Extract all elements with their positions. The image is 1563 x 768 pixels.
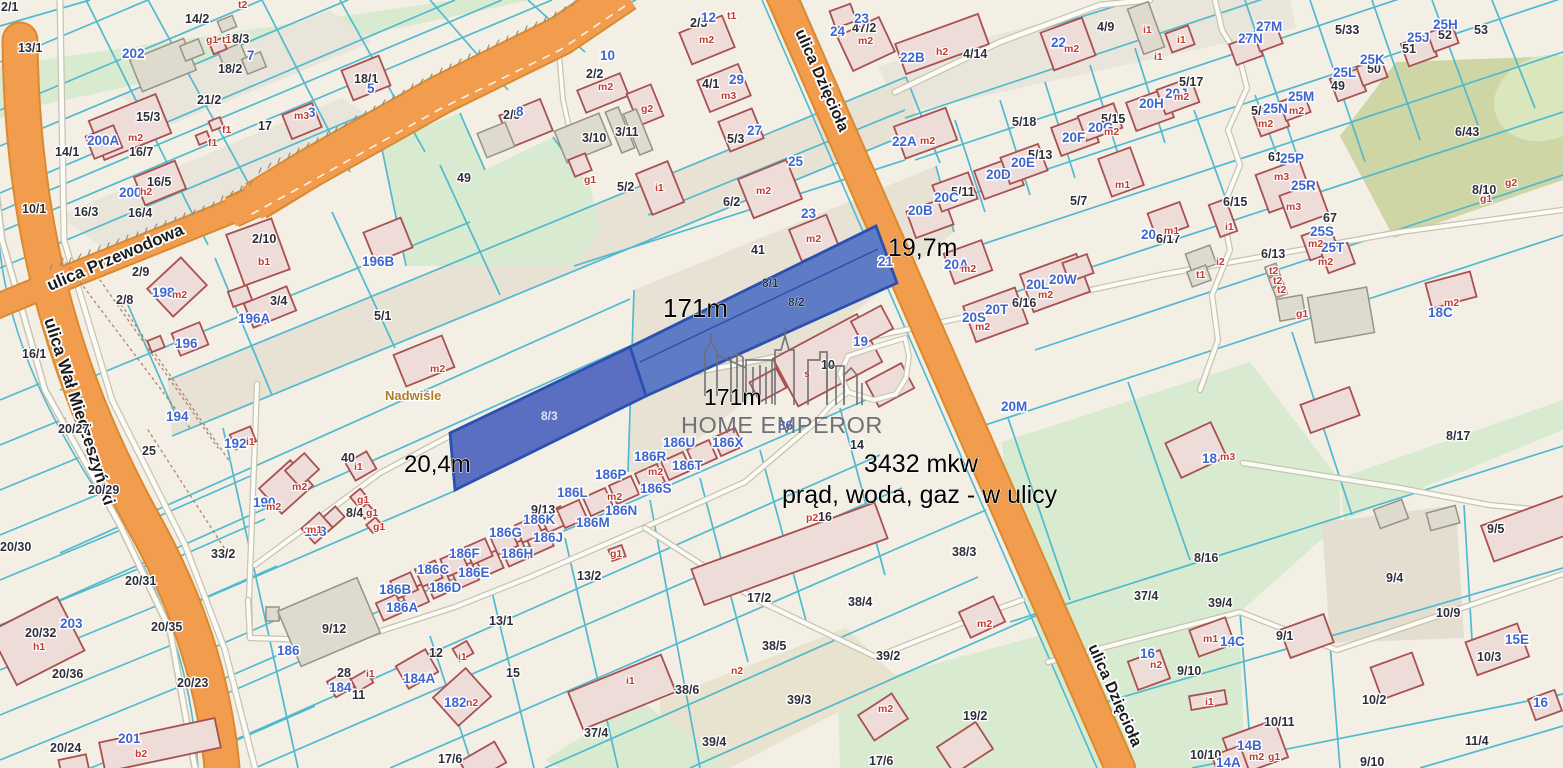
svg-text:n2: n2 [731,665,743,677]
svg-text:186F: 186F [449,546,480,561]
svg-text:24: 24 [830,24,846,39]
svg-text:16/1: 16/1 [22,347,46,361]
svg-text:25J: 25J [1407,30,1430,45]
svg-text:18/2: 18/2 [218,62,242,76]
svg-text:4/14: 4/14 [963,47,987,61]
svg-text:38/4: 38/4 [848,595,872,609]
svg-text:i1: i1 [246,436,255,448]
svg-text:182: 182 [444,695,467,710]
svg-text:m2: m2 [1249,751,1264,763]
svg-text:186T: 186T [672,458,704,473]
svg-text:5/7: 5/7 [1070,194,1087,208]
svg-text:20/23: 20/23 [177,676,208,690]
svg-text:18: 18 [1202,451,1218,466]
svg-text:192: 192 [224,436,247,451]
svg-text:20/35: 20/35 [151,620,182,634]
svg-text:h1: h1 [33,641,45,653]
svg-text:g2: g2 [641,103,653,115]
svg-text:21/2: 21/2 [197,93,221,107]
svg-text:49: 49 [457,171,471,185]
svg-text:9/1: 9/1 [1276,629,1293,643]
svg-text:h2: h2 [140,186,152,198]
svg-text:10/9: 10/9 [1436,606,1460,620]
svg-text:20/29: 20/29 [88,483,119,497]
svg-text:f1: f1 [222,124,231,136]
svg-text:186P: 186P [595,467,627,482]
svg-text:22A: 22A [892,134,917,149]
svg-text:16: 16 [1533,695,1549,710]
svg-text:20C: 20C [934,190,959,205]
svg-text:23: 23 [801,206,817,221]
svg-text:186D: 186D [429,580,462,595]
svg-text:5/33: 5/33 [1335,23,1359,37]
svg-text:m2: m2 [1308,238,1323,250]
svg-text:m2: m2 [266,501,281,513]
svg-text:8/1: 8/1 [762,276,779,290]
svg-text:i2: i2 [1216,256,1225,268]
svg-text:171m: 171m [663,293,728,323]
svg-text:9/12: 9/12 [322,622,346,636]
svg-text:11: 11 [352,688,365,702]
svg-text:8/17: 8/17 [1446,429,1470,443]
svg-text:20M: 20M [1001,399,1027,414]
svg-text:29: 29 [729,72,744,87]
svg-text:10: 10 [821,358,835,372]
svg-text:186K: 186K [523,512,556,527]
svg-text:m2: m2 [648,466,663,478]
svg-text:6/15: 6/15 [1223,195,1247,209]
svg-text:186C: 186C [417,562,450,577]
svg-text:m3: m3 [1220,451,1235,463]
svg-text:i1: i1 [1154,51,1163,63]
svg-text:17: 17 [258,119,272,133]
svg-text:186A: 186A [386,600,419,615]
svg-text:25H: 25H [1433,17,1458,32]
svg-text:14: 14 [850,438,864,452]
svg-text:186M: 186M [576,515,610,530]
svg-text:i1: i1 [626,675,635,687]
svg-text:8/2: 8/2 [788,295,805,309]
svg-text:25L: 25L [1333,65,1356,80]
svg-text:17/2: 17/2 [747,591,771,605]
svg-text:m2: m2 [1174,91,1189,103]
svg-text:10: 10 [600,48,615,63]
svg-text:i1: i1 [1225,221,1234,233]
svg-text:39/4: 39/4 [702,735,726,749]
svg-text:67: 67 [1323,211,1337,225]
svg-text:40: 40 [341,451,355,465]
svg-text:16/3: 16/3 [74,205,98,219]
svg-text:Nadwiśle: Nadwiśle [385,388,441,403]
svg-text:7: 7 [247,48,255,63]
svg-text:186: 186 [277,643,300,658]
svg-text:m2: m2 [1289,105,1304,117]
svg-text:20: 20 [1141,227,1156,242]
svg-text:39/2: 39/2 [876,649,900,663]
svg-text:33/2: 33/2 [211,547,235,561]
svg-text:201: 201 [118,731,141,746]
svg-text:25K: 25K [1360,52,1385,67]
svg-text:38/3: 38/3 [952,545,976,559]
svg-text:m2: m2 [430,363,445,375]
svg-text:13/1: 13/1 [18,41,42,55]
svg-text:41: 41 [751,243,765,257]
svg-text:10/1: 10/1 [22,202,46,216]
svg-text:m2: m2 [858,35,873,47]
svg-text:20F: 20F [1062,130,1085,145]
svg-text:8/4: 8/4 [346,506,363,520]
svg-text:20/30: 20/30 [0,540,31,554]
svg-text:14C: 14C [1220,634,1245,649]
svg-text:25R: 25R [1291,178,1316,193]
svg-text:20W: 20W [1049,272,1077,287]
svg-text:m2: m2 [878,703,893,715]
svg-text:15: 15 [506,666,520,680]
svg-text:20/27: 20/27 [58,422,89,436]
svg-text:2/1: 2/1 [1,0,18,14]
svg-text:m2: m2 [1318,256,1333,268]
svg-text:25: 25 [788,154,804,169]
svg-text:m3: m3 [1274,171,1289,183]
svg-text:186B: 186B [379,582,412,597]
svg-text:20/32: 20/32 [25,626,56,640]
svg-text:10/3: 10/3 [1477,650,1501,664]
svg-text:203: 203 [60,616,83,631]
svg-text:15E: 15E [1505,632,1529,647]
svg-text:16: 16 [818,510,832,524]
svg-text:171m: 171m [704,384,762,410]
svg-text:38/6: 38/6 [675,683,699,697]
svg-text:186S: 186S [640,481,672,496]
svg-text:9/5: 9/5 [1487,522,1504,536]
svg-text:14A: 14A [1216,755,1241,768]
svg-text:16/7: 16/7 [129,145,153,159]
svg-text:186J: 186J [533,530,563,545]
svg-text:m2: m2 [1258,118,1273,130]
svg-text:5: 5 [367,81,375,96]
svg-text:13/1: 13/1 [489,614,513,628]
svg-text:19: 19 [853,334,868,349]
svg-text:25M: 25M [1288,89,1314,104]
svg-text:37/4: 37/4 [584,726,608,740]
svg-text:20T: 20T [985,302,1009,317]
svg-text:186R: 186R [634,449,667,464]
svg-text:202: 202 [122,46,145,61]
svg-text:186E: 186E [458,565,490,580]
svg-text:m2: m2 [806,233,821,245]
svg-text:m3: m3 [721,90,736,102]
svg-text:2/2: 2/2 [586,67,603,81]
svg-text:m1: m1 [1115,179,1130,191]
svg-text:9/10: 9/10 [1360,755,1384,768]
svg-text:186L: 186L [557,485,588,500]
svg-text:14/2: 14/2 [185,12,209,26]
svg-text:4/9: 4/9 [1097,20,1114,34]
svg-text:h2: h2 [936,46,948,58]
svg-text:17/6: 17/6 [869,754,893,768]
svg-text:3/10: 3/10 [582,131,606,145]
svg-text:m2: m2 [756,185,771,197]
svg-text:11/4: 11/4 [1465,734,1489,748]
svg-text:9/10: 9/10 [1177,664,1201,678]
svg-text:m2: m2 [1444,297,1459,309]
svg-text:6/16: 6/16 [1012,296,1036,310]
svg-text:20/31: 20/31 [125,574,156,588]
svg-text:g1: g1 [610,548,622,560]
svg-text:m2: m2 [128,132,143,144]
svg-text:25N: 25N [1263,101,1288,116]
svg-text:m2: m2 [172,289,187,301]
svg-text:g1: g1 [1268,751,1280,763]
svg-text:13/2: 13/2 [577,569,601,583]
svg-text:g1: g1 [206,34,218,46]
svg-text:196B: 196B [362,254,395,269]
svg-text:3/4: 3/4 [270,294,287,308]
svg-text:i1: i1 [458,651,467,663]
svg-text:17/6: 17/6 [438,752,462,766]
svg-text:5/18: 5/18 [1012,115,1036,129]
svg-text:t2: t2 [1277,284,1286,296]
svg-text:m1: m1 [1203,633,1218,645]
svg-text:t1: t1 [222,34,231,46]
svg-text:20,4m: 20,4m [404,451,471,478]
svg-text:p2: p2 [806,512,818,524]
svg-text:m2: m2 [920,135,935,147]
svg-text:200: 200 [119,185,142,200]
svg-text:8/3: 8/3 [541,409,558,423]
svg-text:3/11: 3/11 [615,125,639,139]
svg-text:g1: g1 [1296,308,1308,320]
svg-text:16/4: 16/4 [128,206,152,220]
svg-text:14/1: 14/1 [55,145,79,159]
svg-text:5/1: 5/1 [374,309,391,323]
svg-text:184: 184 [329,680,352,695]
svg-text:n2: n2 [466,697,478,709]
svg-text:i1: i1 [354,461,363,473]
svg-text:m3: m3 [294,110,309,122]
svg-text:m2: m2 [1038,289,1053,301]
svg-text:t1: t1 [1196,269,1205,281]
svg-text:20B: 20B [908,203,933,218]
svg-text:28: 28 [337,666,351,680]
svg-text:m3: m3 [1286,201,1301,213]
svg-text:12: 12 [701,10,716,25]
svg-text:m2: m2 [977,618,992,630]
svg-text:m2: m2 [1064,43,1079,55]
svg-text:38/5: 38/5 [762,639,786,653]
svg-text:25P: 25P [1280,151,1304,166]
svg-text:m2: m2 [1104,126,1119,138]
svg-text:2/10: 2/10 [252,232,276,246]
svg-text:200A: 200A [87,133,120,148]
svg-text:m2: m2 [961,263,976,275]
svg-text:27N: 27N [1238,31,1263,46]
svg-text:6/13: 6/13 [1261,247,1285,261]
svg-text:m2: m2 [699,34,714,46]
svg-text:b2: b2 [135,748,147,760]
svg-text:10/2: 10/2 [1362,693,1386,707]
svg-text:prąd, woda, gaz - w ulicy: prąd, woda, gaz - w ulicy [782,481,1058,509]
svg-text:20/24: 20/24 [50,741,81,755]
svg-text:g1: g1 [357,494,369,506]
svg-text:25T: 25T [1321,240,1345,255]
svg-text:g2: g2 [1505,177,1517,189]
svg-text:194: 194 [166,409,189,424]
svg-text:20H: 20H [1139,96,1164,111]
svg-text:t2: t2 [238,0,247,11]
svg-text:196: 196 [175,336,198,351]
svg-text:i1: i1 [1205,696,1214,708]
svg-text:m1: m1 [307,524,322,536]
svg-text:186H: 186H [501,546,533,561]
svg-text:3: 3 [308,105,316,120]
svg-text:8: 8 [516,104,524,119]
svg-text:39/3: 39/3 [787,693,811,707]
svg-text:m2: m2 [975,321,990,333]
svg-text:184A: 184A [403,671,436,686]
svg-text:m2: m2 [607,491,622,503]
svg-text:25: 25 [142,444,156,458]
svg-text:12: 12 [429,646,443,660]
svg-text:20E: 20E [1011,155,1035,170]
svg-text:s: s [804,368,810,380]
svg-text:19,7m: 19,7m [888,234,957,262]
svg-text:186G: 186G [489,525,522,540]
svg-text:4/1: 4/1 [702,77,719,91]
svg-text:b1: b1 [258,256,270,268]
svg-text:53: 53 [1474,23,1488,37]
svg-text:i1: i1 [366,668,375,680]
svg-text:3432 mkw: 3432 mkw [864,450,979,478]
svg-text:n2: n2 [1150,659,1162,671]
svg-text:m1: m1 [1164,225,1179,237]
svg-text:186N: 186N [605,503,637,518]
svg-text:g1: g1 [366,507,378,519]
svg-text:196A: 196A [238,311,271,326]
svg-text:9/4: 9/4 [1386,571,1403,585]
svg-text:g1: g1 [373,521,385,533]
svg-text:i1: i1 [655,182,664,194]
svg-text:g1: g1 [1480,193,1492,205]
svg-text:t1: t1 [727,10,736,22]
svg-text:23: 23 [854,11,870,26]
svg-text:20D: 20D [986,167,1011,182]
svg-text:37/4: 37/4 [1134,589,1158,603]
svg-text:f1: f1 [208,137,217,149]
svg-text:10/11: 10/11 [1264,715,1295,729]
svg-text:6/43: 6/43 [1455,125,1479,139]
svg-text:i1: i1 [1177,34,1186,46]
svg-text:5/2: 5/2 [617,180,634,194]
svg-text:2/9: 2/9 [132,265,149,279]
svg-text:8/16: 8/16 [1194,551,1218,565]
svg-text:6/2: 6/2 [723,195,740,209]
svg-text:19/2: 19/2 [963,709,987,723]
svg-text:m2: m2 [598,81,613,93]
svg-text:HOME EMPEROR: HOME EMPEROR [681,412,883,438]
svg-text:5/3: 5/3 [727,132,744,146]
svg-text:g1: g1 [584,174,596,186]
svg-text:2/8: 2/8 [116,293,133,307]
svg-text:15/3: 15/3 [136,110,160,124]
svg-text:m2: m2 [292,481,307,493]
svg-text:22B: 22B [900,50,925,65]
svg-text:39/4: 39/4 [1208,596,1232,610]
svg-text:49: 49 [1331,79,1345,93]
svg-text:20/36: 20/36 [52,667,83,681]
svg-text:25S: 25S [1310,224,1334,239]
svg-text:i1: i1 [1143,24,1152,36]
svg-text:27: 27 [747,123,762,138]
